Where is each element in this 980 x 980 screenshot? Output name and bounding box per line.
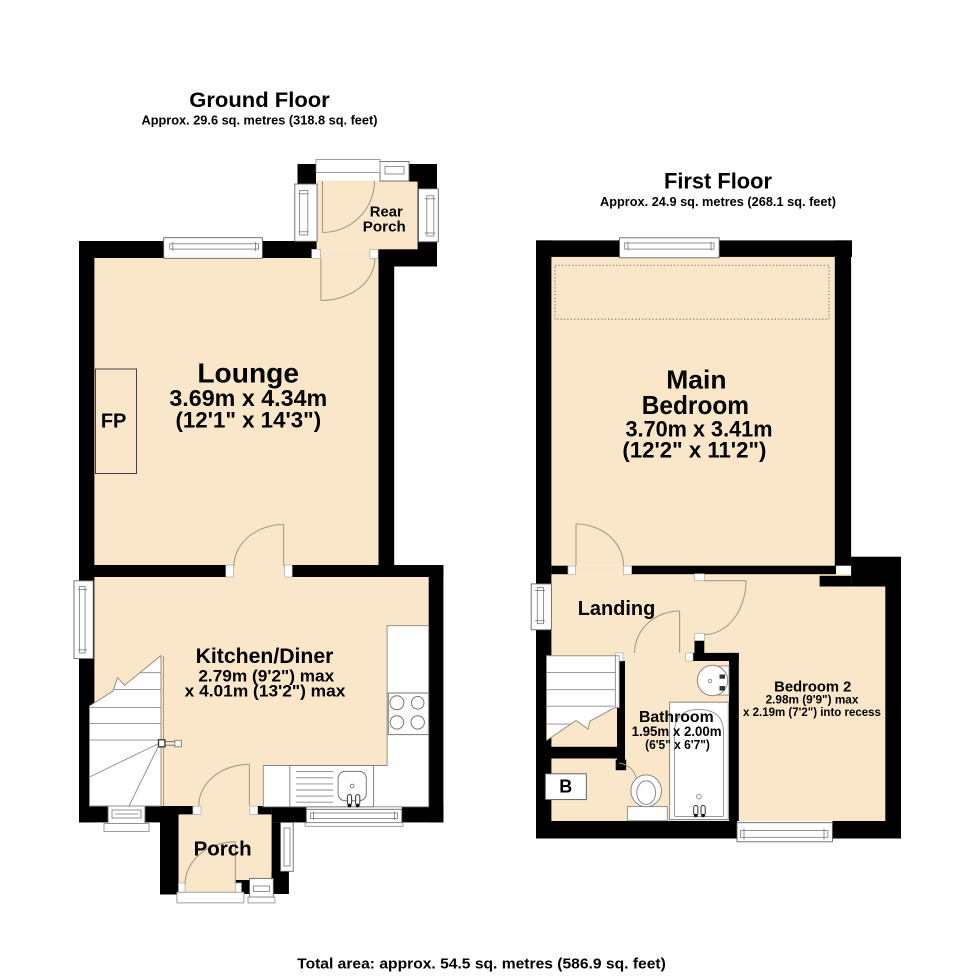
svg-text:(12'2" x 11'2"): (12'2" x 11'2") [622,438,766,463]
svg-text:Ground Floor: Ground Floor [189,88,330,112]
svg-text:B: B [559,777,572,797]
svg-text:Porch: Porch [363,219,406,236]
svg-text:First Floor: First Floor [664,169,772,194]
svg-text:Kitchen/Diner: Kitchen/Diner [196,645,334,668]
svg-text:x 4.01m (13'2") max: x 4.01m (13'2") max [185,682,346,701]
svg-text:Approx. 29.6 sq. metres (318.8: Approx. 29.6 sq. metres (318.8 sq. feet) [142,113,378,128]
svg-text:(12'1" x 14'3"): (12'1" x 14'3") [175,408,321,433]
svg-text:Porch: Porch [194,838,252,860]
svg-text:Approx. 24.9 sq. metres (268.1: Approx. 24.9 sq. metres (268.1 sq. feet) [600,194,836,209]
svg-text:FP: FP [101,411,127,433]
svg-text:1.95m x 2.00m: 1.95m x 2.00m [632,724,722,739]
svg-text:x 2.19m (7'2") into recess: x 2.19m (7'2") into recess [743,707,881,719]
svg-text:Total area: approx. 54.5 sq. m: Total area: approx. 54.5 sq. metres (586… [297,956,666,973]
svg-text:2.98m (9'9") max: 2.98m (9'9") max [766,693,859,707]
svg-text:Landing: Landing [578,598,656,620]
svg-text:(6'5" x 6'7"): (6'5" x 6'7") [645,738,710,752]
